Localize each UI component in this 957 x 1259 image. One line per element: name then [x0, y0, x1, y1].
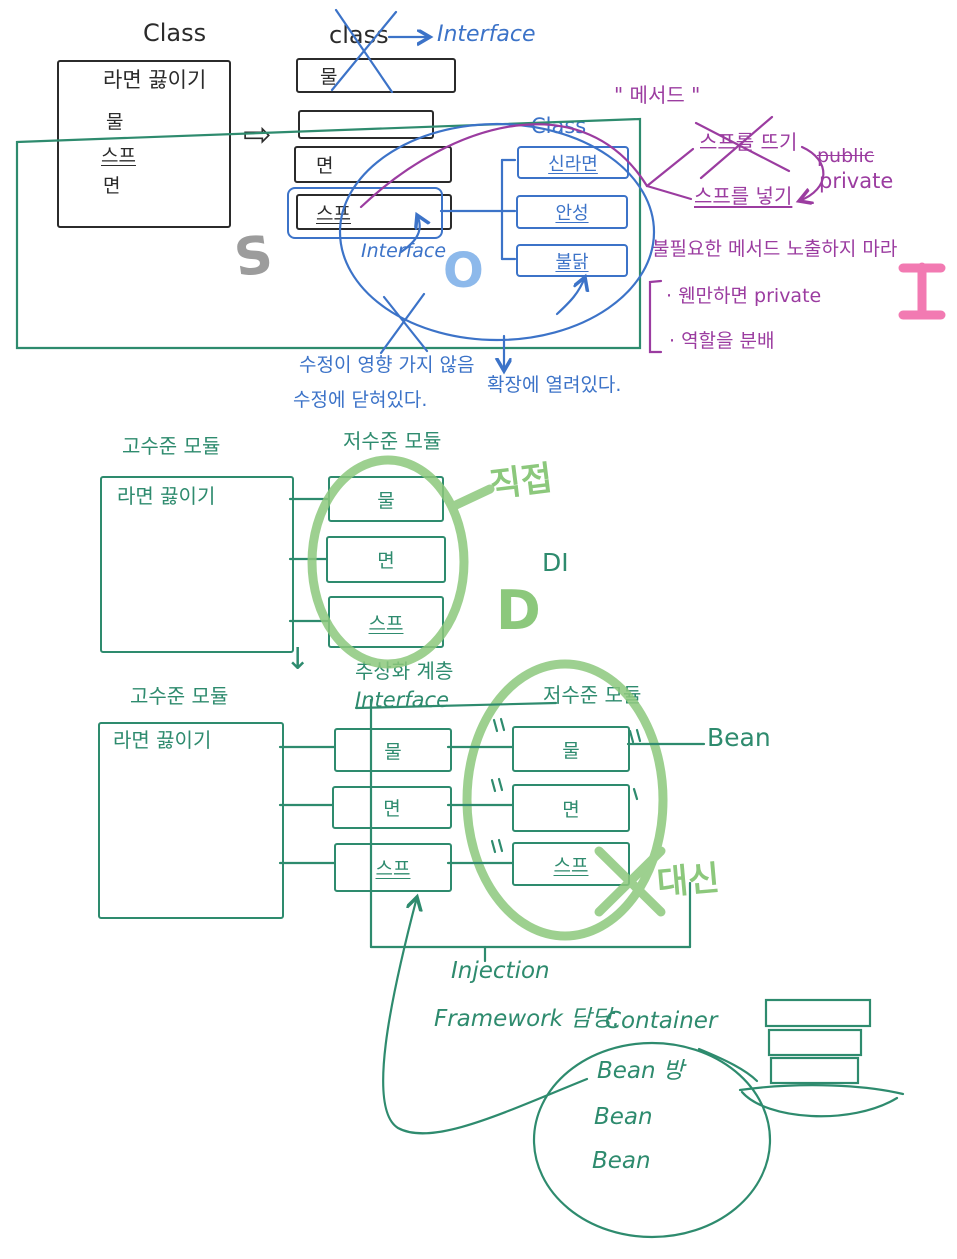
instead-annotation: 대신	[655, 859, 721, 903]
ocp-note-no-impact: 수정이 영향 가지 않음	[299, 355, 474, 377]
shin-ramyun-box: 신라면	[517, 146, 629, 179]
dip2-low-noodle-label: 면	[562, 795, 579, 822]
dip1-soup-box: 스프	[328, 596, 444, 648]
isp-bullet-private: · 웬만하면 private	[666, 286, 821, 308]
bean-label-2: Bean	[594, 1104, 653, 1130]
solid-letter-o: O	[443, 244, 484, 299]
interface-callout: Interface	[361, 241, 446, 263]
dip2-high-name: 라면 끓이기	[113, 729, 211, 752]
buldak-box: 불닭	[516, 244, 628, 277]
di-label: DI	[542, 549, 569, 578]
access-public: public	[817, 146, 874, 168]
srp-water-box: 물	[296, 58, 456, 93]
dip1-noodle-box: 면	[326, 536, 446, 583]
dip2-iface-soup-label: 스프	[376, 854, 411, 881]
srp-noodle-box: 면	[294, 146, 452, 183]
dip2-low-water-label: 물	[562, 736, 579, 763]
solid-letter-i	[903, 267, 941, 315]
method-removed: 스프를 뜨기	[699, 131, 797, 154]
whiteboard-sketch: Class 라면 끓이기 물 스프 면 ⇨ class Interface 물 …	[0, 0, 957, 1259]
solid-letter-s: S	[231, 226, 276, 290]
ingredient-soup: 스프	[101, 146, 136, 168]
down-arrow-icon: ↓	[285, 643, 310, 678]
dip2-low-noodle-box: 면	[512, 784, 630, 832]
dip1-water-label: 물	[377, 486, 394, 513]
left-class-title: Class	[143, 20, 206, 48]
ocp-note-open: 확장에 열려있다.	[487, 375, 621, 397]
transform-arrow-icon: ⇨	[243, 116, 272, 155]
ansung-label: 안성	[555, 199, 588, 225]
isp-bullet-roles: · 역할을 분배	[669, 331, 775, 353]
method-quote: " 메서드 "	[614, 84, 700, 107]
impl-class-title: Class	[531, 114, 586, 138]
isp-rule: 불필요한 메서드 노출하지 마라	[652, 239, 897, 261]
dip2-iface-noodle-label: 면	[383, 794, 400, 821]
soup-interface-highlight-box	[287, 187, 443, 239]
dip1-low-label: 저수준 모듈	[343, 430, 441, 453]
bean-room-label: Bean 방	[597, 1058, 684, 1084]
dip2-low-water-box: 물	[512, 726, 630, 772]
buldak-label: 불닭	[555, 248, 588, 274]
srp-noodle-label: 면	[316, 151, 333, 178]
dip2-iface-water-label: 물	[384, 737, 401, 764]
direct-annotation: 직접	[488, 459, 555, 505]
access-private: private	[819, 169, 893, 193]
bean-label: Bean	[707, 724, 771, 753]
dip2-high-label: 고수준 모듈	[130, 685, 228, 708]
dip2-iface-water-box: 물	[334, 728, 452, 772]
ansung-box: 안성	[516, 195, 628, 229]
mid-class-title: class	[329, 22, 389, 50]
dip1-soup-label: 스프	[369, 609, 404, 636]
framework-label: Framework 담당.	[434, 1006, 620, 1032]
injection-label: Injection	[451, 958, 550, 984]
srp-water-label: 물	[320, 62, 337, 89]
dip2-low-soup-box: 스프	[512, 842, 630, 886]
dip2-iface-soup-box: 스프	[334, 843, 452, 892]
container-label: Container	[605, 1008, 717, 1034]
ingredient-noodle: 면	[103, 176, 120, 198]
dip1-high-label: 고수준 모듈	[122, 435, 220, 458]
dip1-noodle-label: 면	[377, 546, 394, 573]
method-kept: 스프를 넣기	[694, 185, 792, 208]
dip1-high-name: 라면 끓이기	[117, 485, 215, 508]
dip1-connectors	[290, 499, 328, 621]
ingredient-water: 물	[106, 112, 123, 134]
dip2-low-soup-label: 스프	[554, 851, 589, 878]
dip2-abstraction-label: 추상화 계층	[355, 660, 453, 683]
bean-label-3: Bean	[592, 1148, 651, 1174]
ramen-class-name: 라면 끓이기	[103, 68, 206, 92]
solid-letter-d: D	[496, 580, 541, 642]
ocp-note-closed: 수정에 닫혀있다.	[293, 390, 427, 412]
dip2-interface-label: Interface	[355, 688, 449, 712]
interface-arrow-label: Interface	[437, 22, 536, 47]
dip2-iface-noodle-box: 면	[332, 786, 452, 829]
dip1-water-box: 물	[328, 476, 444, 522]
dip2-low-label: 저수준 모듈	[543, 684, 641, 707]
srp-empty-box	[298, 110, 434, 139]
shin-ramyun-label: 신라면	[548, 150, 598, 176]
